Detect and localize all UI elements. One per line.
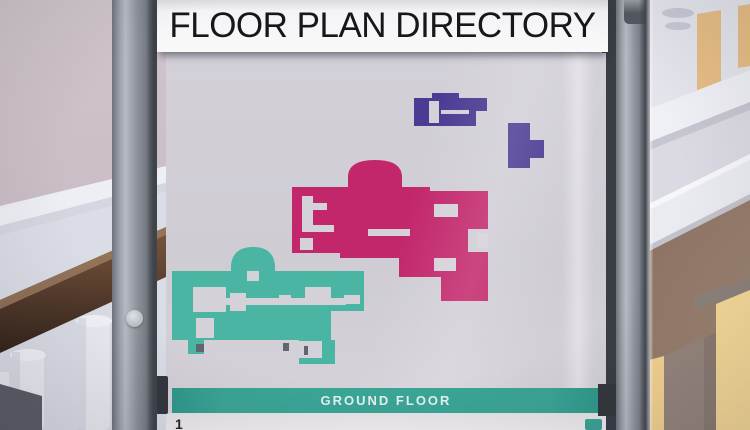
- sign-title: FLOOR PLAN DIRECTORY: [169, 6, 595, 46]
- purple-wing-main: [414, 93, 487, 126]
- plan-room-cutout: [193, 287, 226, 312]
- teal-wing-outline: [172, 247, 364, 364]
- sign-panel: GROUND FLOOR 1: [166, 53, 606, 430]
- newel-post-edge: [704, 332, 716, 430]
- sign-title-bar: FLOOR PLAN DIRECTORY: [157, 0, 608, 52]
- pink-wing-outline: [292, 160, 488, 301]
- floor-plan-pink: [292, 160, 488, 301]
- plan-room-cutout: [196, 318, 214, 338]
- plan-room-cutout: [313, 203, 327, 210]
- plan-label-box: [305, 287, 331, 298]
- plan-room-cutout: [247, 271, 259, 281]
- floor-banner: GROUND FLOOR: [172, 388, 600, 413]
- sign-post-right: [616, 0, 650, 430]
- stairs-icon: [283, 343, 289, 351]
- legend-color-swatch-teal: [585, 419, 602, 430]
- plan-label-box: [434, 204, 458, 217]
- plan-corridor-cutout: [368, 229, 410, 236]
- legend-strip: 1: [166, 413, 606, 430]
- glass-edge-reflection: [646, 0, 653, 430]
- floor-plan-purple: [414, 93, 544, 168]
- mount-screw: [126, 310, 143, 327]
- plan-room-cutout: [429, 101, 439, 123]
- baluster-shade: [78, 318, 86, 430]
- stairs-icon: [196, 344, 204, 352]
- photo-scene: GROUND FLOOR 1 FLOOR PLAN DIRECTORY: [0, 0, 750, 430]
- plan-corridor-cutout: [196, 298, 346, 305]
- floor-banner-label: GROUND FLOOR: [321, 393, 452, 408]
- plan-corridor-cutout: [302, 225, 334, 232]
- floor-plan-map: [166, 53, 606, 430]
- plan-room-cutout: [230, 293, 246, 311]
- plan-room-cutout: [279, 295, 291, 304]
- plan-room-cutout: [302, 196, 313, 232]
- plan-corridor-cutout: [441, 110, 469, 114]
- plan-room-cutout: [300, 238, 313, 250]
- floor-plan-teal: [172, 247, 364, 364]
- baluster-gap: [738, 4, 750, 68]
- purple-wing-annex: [508, 123, 544, 168]
- plan-room-cutout: [477, 233, 488, 248]
- warm-wall-strip: [716, 290, 750, 430]
- sign-post-left: [112, 0, 157, 430]
- baluster-gap: [697, 10, 721, 94]
- plan-label-box: [434, 258, 456, 271]
- legend-item-number: 1: [175, 416, 183, 430]
- plan-room-cutout: [344, 295, 360, 304]
- stairs-icon: [304, 346, 308, 355]
- plan-label-box: [298, 341, 322, 358]
